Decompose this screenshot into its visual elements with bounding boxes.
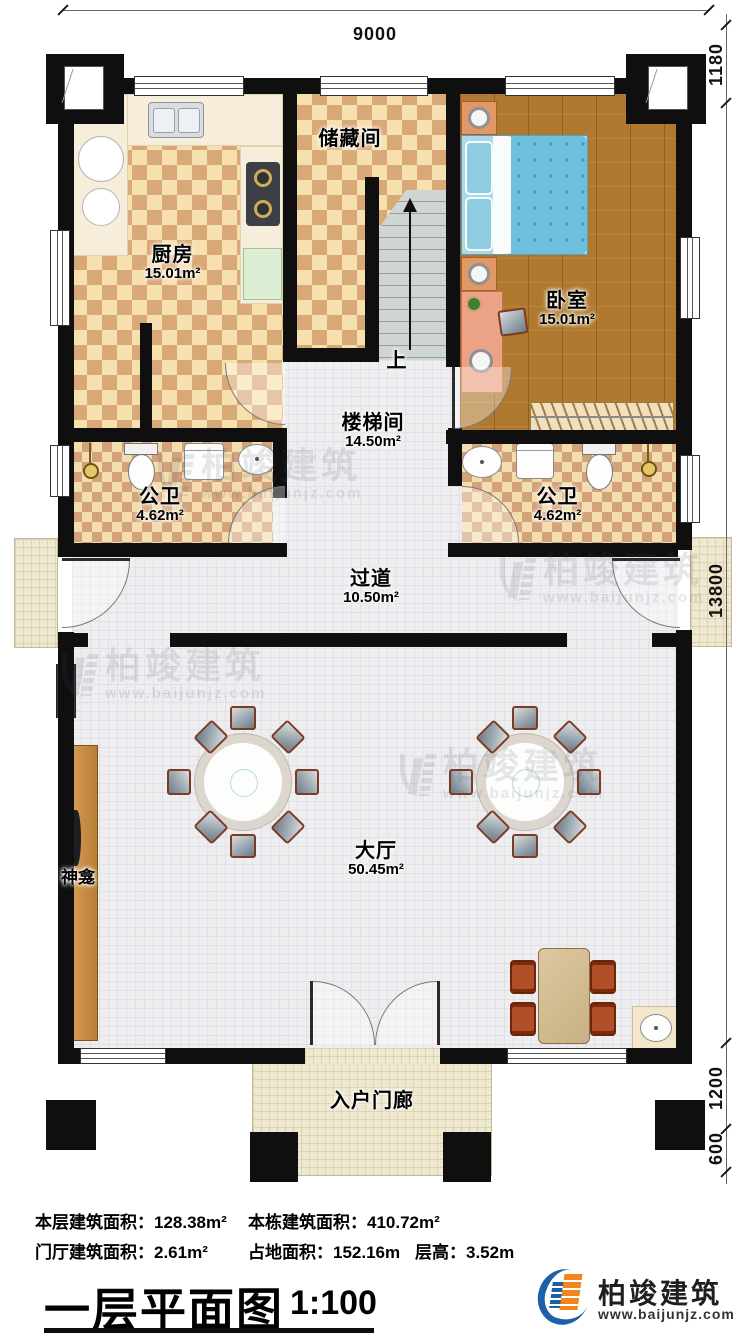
lamp-icon — [468, 263, 490, 285]
lazy-susan — [512, 769, 540, 797]
dining-chair — [512, 706, 538, 730]
dimension-right-value: 13800 — [706, 540, 727, 640]
room-label-bath-left: 公卫 4.62m² — [105, 486, 215, 525]
room-name: 楼梯间 — [318, 412, 428, 434]
stat-building-area: 本栋建筑面积：410.72m² — [248, 1208, 440, 1233]
kitchen-sink-basin — [178, 108, 200, 133]
window — [505, 76, 615, 96]
left-landing — [14, 538, 58, 648]
dimension-right-value: 600 — [706, 1122, 727, 1174]
wall — [448, 543, 678, 557]
room-name: 入户门廊 — [297, 1090, 447, 1112]
wall — [448, 428, 462, 486]
window — [507, 1048, 627, 1064]
window — [50, 445, 70, 497]
square-table-chair — [510, 1002, 536, 1036]
title-underline — [44, 1328, 374, 1333]
brand-url: www.baijunjz.com — [598, 1306, 735, 1322]
drawing-scale: 1:100 — [290, 1284, 377, 1323]
window — [50, 230, 70, 326]
stat-floor-height: 层高：3.52m — [415, 1238, 514, 1263]
bathroom-sink — [462, 446, 502, 478]
kitchen-sink — [148, 102, 204, 138]
pillow — [465, 141, 493, 195]
wall — [58, 543, 287, 557]
window — [134, 76, 244, 96]
room-area: 10.50m² — [315, 590, 427, 607]
stairs-up-label: 上 — [382, 350, 412, 372]
window — [80, 1048, 166, 1064]
wall — [676, 630, 692, 1064]
room-name: 公卫 — [500, 486, 615, 508]
corner-wash-basin — [632, 1006, 678, 1050]
room-name: 大厅 — [320, 840, 432, 862]
room-name: 厨房 — [115, 244, 230, 266]
stove-burner — [254, 200, 272, 218]
room-label-corridor: 过道 10.50m² — [315, 568, 427, 607]
square-table-chair — [510, 960, 536, 994]
dining-chair — [167, 769, 191, 795]
wardrobe — [530, 402, 674, 432]
porch-column — [250, 1132, 298, 1182]
room-label-bath-right: 公卫 4.62m² — [500, 486, 615, 525]
shrine-text: 神龛 — [54, 868, 102, 887]
pull-cord-knob-icon — [641, 461, 657, 477]
nightstand — [461, 257, 497, 291]
stair-direction-arrow — [403, 198, 417, 212]
kitchen-round-counter-item — [82, 188, 120, 226]
stove-burner — [254, 169, 272, 187]
dining-chair — [449, 769, 473, 795]
window — [680, 455, 700, 523]
wall — [446, 90, 460, 367]
wall — [446, 430, 678, 444]
room-label-hall: 大厅 50.45m² — [320, 840, 432, 879]
floor-plan-canvas: 柏竣建筑 www.baijunjz.com 柏竣建筑 www.baijunjz.… — [0, 0, 750, 1337]
pillow — [465, 197, 493, 251]
dining-chair — [295, 769, 319, 795]
room-label-stairwell: 楼梯间 14.50m² — [318, 412, 428, 451]
wall — [365, 177, 379, 354]
plant-icon — [468, 298, 480, 310]
dining-chair — [230, 834, 256, 858]
room-label-storage: 储藏间 — [300, 128, 400, 150]
dining-chair — [577, 769, 601, 795]
pull-cord-knob-icon — [83, 463, 99, 479]
kitchen-round-counter-item — [78, 136, 124, 182]
room-label-porch: 入户门廊 — [297, 1090, 447, 1112]
entrance-threshold — [305, 1048, 440, 1064]
toilet-bowl — [586, 454, 613, 490]
stat-foyer-area: 门厅建筑面积：2.61m² — [35, 1238, 208, 1263]
corner-sink-bowl — [640, 1014, 672, 1042]
stat-land-area: 占地面积：152.16m — [248, 1238, 400, 1263]
window — [680, 237, 700, 319]
corner-bay-window — [648, 66, 688, 110]
washing-machine — [184, 443, 224, 480]
room-area: 14.50m² — [318, 434, 428, 451]
room-label-kitchen: 厨房 15.01m² — [115, 244, 230, 283]
stove — [246, 162, 280, 226]
kitchen-sink-basin — [153, 108, 175, 133]
bathroom-sink — [238, 444, 276, 475]
stat-floor-area: 本层建筑面积：128.38m² — [35, 1208, 227, 1233]
shrine-cabinet — [72, 745, 98, 1041]
wall — [58, 428, 287, 442]
room-area: 50.45m² — [320, 862, 432, 879]
nightstand — [461, 101, 497, 135]
pull-cord-icon — [647, 441, 649, 463]
room-area: 15.01m² — [512, 312, 622, 329]
room-label-bedroom: 卧室 15.01m² — [512, 290, 622, 329]
wall — [140, 323, 152, 430]
wall — [283, 90, 297, 362]
brand-logo-icon — [538, 1266, 592, 1322]
up-text: 上 — [382, 350, 412, 372]
room-area: 4.62m² — [105, 508, 215, 525]
pull-cord-icon — [89, 443, 91, 465]
column — [46, 1100, 96, 1150]
door-leaf — [612, 558, 680, 561]
door-leaf — [437, 981, 440, 1045]
window — [320, 76, 428, 96]
faucet-dot — [480, 460, 484, 464]
shrine-label: 神龛 — [54, 868, 102, 887]
porch-column — [443, 1132, 491, 1182]
toilet-bowl — [128, 454, 155, 490]
dimension-line-top — [62, 10, 710, 11]
refrigerator — [243, 248, 282, 300]
room-name: 过道 — [315, 568, 427, 590]
corner-bay-window — [64, 66, 104, 110]
drain-dot — [654, 1026, 658, 1030]
washing-machine — [516, 443, 554, 479]
dimension-right-value: 1180 — [706, 30, 727, 98]
wall — [170, 633, 567, 647]
column — [655, 1100, 705, 1150]
lazy-susan — [230, 769, 258, 797]
lamp-icon — [468, 107, 490, 129]
square-table-chair — [590, 1002, 616, 1036]
door-leaf — [62, 558, 130, 561]
dining-chair — [512, 834, 538, 858]
dining-chair — [230, 706, 256, 730]
dimension-top-value: 9000 — [340, 24, 410, 45]
door-leaf — [310, 981, 313, 1045]
wall — [58, 633, 88, 647]
wall — [58, 632, 74, 1064]
square-dining-table — [538, 948, 590, 1044]
dimension-right-value: 1200 — [706, 1052, 727, 1124]
stair-direction-line — [409, 212, 411, 350]
room-name: 公卫 — [105, 486, 215, 508]
bed-blanket — [511, 136, 587, 254]
room-area: 4.62m² — [500, 508, 615, 525]
room-name: 储藏间 — [300, 128, 400, 150]
door-leaf — [452, 367, 455, 429]
wall — [652, 633, 692, 647]
square-table-chair — [590, 960, 616, 994]
room-name: 卧室 — [512, 290, 622, 312]
faucet-dot — [255, 457, 259, 461]
room-area: 15.01m² — [115, 266, 230, 283]
